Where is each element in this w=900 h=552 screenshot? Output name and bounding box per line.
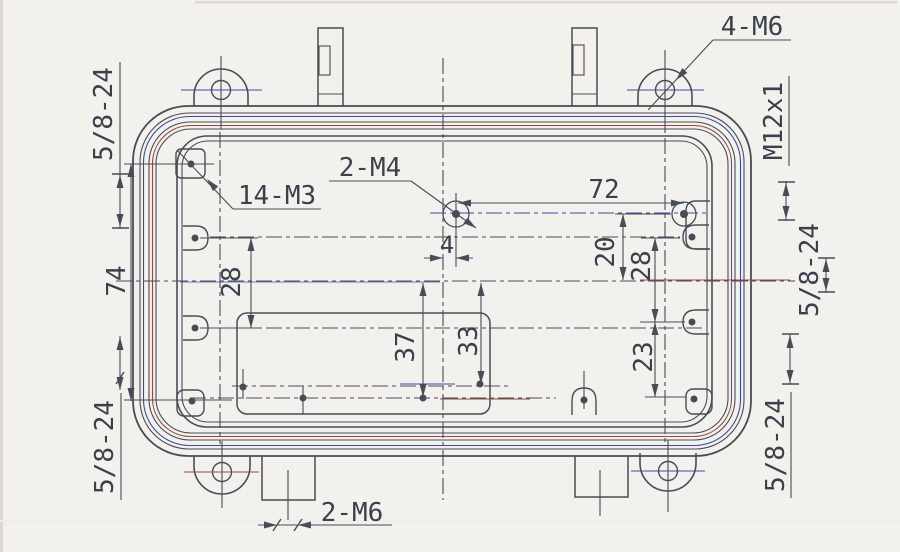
dim-4: 4 [424,231,473,262]
dim-74-label: 74 [102,265,132,296]
callout-thread-bottom-right: 5/8-24 [761,334,799,498]
dim-74: 74 [102,164,135,401]
bottom-tab-right [575,456,628,516]
dim-28-right-label: 28 [627,250,657,281]
label-thread-top-left: 5/8-24 [89,67,119,161]
dim-37: 37 [391,283,427,397]
callout-thread-mid-right: 5/8-24 [795,223,835,317]
label-4-m6: 4-M6 [721,12,784,42]
label-2-m4: 2-M4 [339,153,402,183]
label-thread-bottom-right: 5/8-24 [761,398,791,492]
label-thread-bottom-left: 5/8-24 [90,400,120,494]
mounting-ear-bottom-right [631,440,705,512]
top-tab-left [318,28,343,106]
boss-right-lower [683,310,709,334]
callout-2-m6: 2-M6 [258,498,392,531]
callout-m12x1: M12x1 [759,76,795,221]
dim-23: 23 [629,322,659,397]
label-14-m3: 14-M3 [238,181,316,211]
callout-14-m3: 14-M3 [177,150,321,211]
dim-28-right: 28 [627,238,659,322]
dim-28-left-label: 28 [217,266,247,297]
dim-20: 20 [591,214,627,280]
label-thread-mid-right: 5/8-24 [795,223,825,317]
top-tab-right [572,28,597,106]
drawing-canvas: 74 28 37 33 20 28 23 [0,0,900,552]
callout-thread-bottom-left: 5/8-24 [90,336,124,500]
dim-33: 33 [454,283,485,384]
mounting-ear-top-left [181,56,262,129]
dim-20-label: 20 [591,236,621,267]
dim-4-label: 4 [440,231,454,259]
dim-72-label: 72 [588,175,619,205]
mounting-ear-bottom-left [184,441,259,508]
bottom-tab-left [262,456,315,520]
callout-thread-top-left: 5/8-24 [89,62,129,228]
label-m12x1: M12x1 [759,82,789,160]
dim-33-label: 33 [454,325,484,356]
hole-bottom-row-4 [477,381,484,388]
m4-holes [443,193,696,267]
dim-72: 72 [458,175,684,207]
label-2-m6: 2-M6 [321,498,384,528]
dim-23-label: 23 [629,341,659,372]
dim-37-label: 37 [391,331,421,362]
boss-bottom-right-corner [686,389,712,414]
dim-28-left: 28 [217,238,255,328]
technical-drawing: 74 28 37 33 20 28 23 [0,0,900,552]
